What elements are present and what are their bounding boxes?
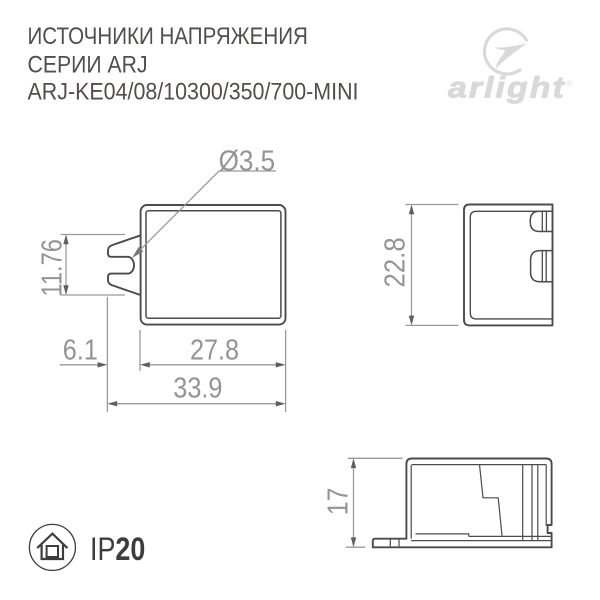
- svg-text:17: 17: [322, 488, 354, 516]
- svg-text:ИСТОЧНИКИ НАПРЯЖЕНИЯ: ИСТОЧНИКИ НАПРЯЖЕНИЯ: [28, 22, 308, 49]
- svg-text:27.8: 27.8: [190, 333, 239, 366]
- svg-text:Ø3.5: Ø3.5: [219, 144, 276, 177]
- svg-text:IP20: IP20: [90, 532, 145, 568]
- svg-text:arlight: arlight: [448, 70, 566, 104]
- svg-text:ARJ-KE04/08/10300/350/700-MINI: ARJ-KE04/08/10300/350/700-MINI: [28, 77, 359, 105]
- svg-text:СЕРИИ ARJ: СЕРИИ ARJ: [28, 50, 148, 78]
- svg-text:33.9: 33.9: [173, 371, 222, 404]
- svg-text:6.1: 6.1: [63, 333, 98, 366]
- svg-text:®: ®: [567, 79, 573, 88]
- svg-text:22.8: 22.8: [378, 237, 411, 287]
- svg-text:11.76: 11.76: [35, 239, 68, 296]
